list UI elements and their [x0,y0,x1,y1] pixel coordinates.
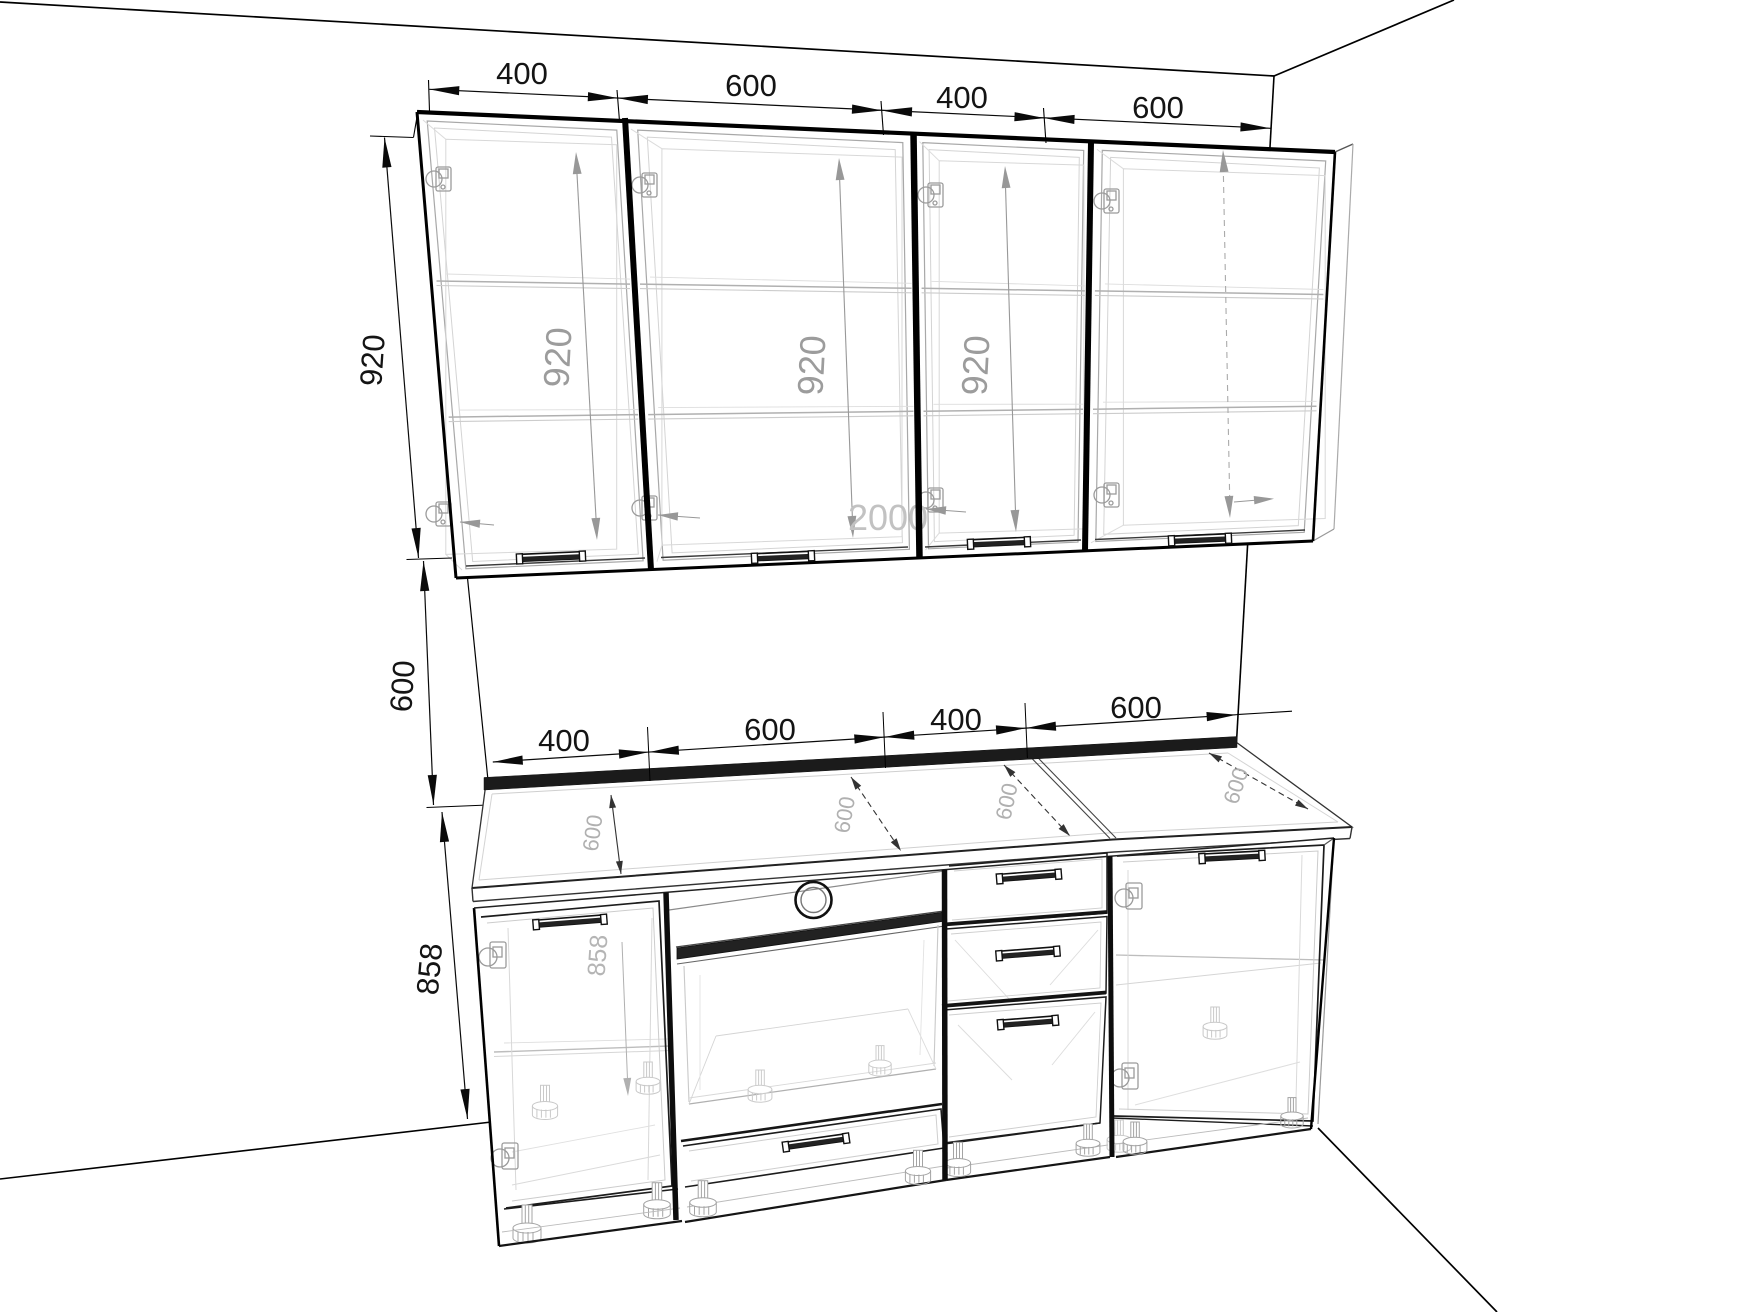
svg-text:600: 600 [383,659,422,713]
svg-text:600: 600 [725,68,777,103]
svg-text:400: 400 [538,723,590,758]
svg-text:920: 920 [353,333,392,387]
svg-text:400: 400 [496,56,548,91]
svg-text:920: 920 [789,334,833,396]
svg-text:600: 600 [744,712,796,747]
svg-text:920: 920 [953,334,997,396]
svg-text:400: 400 [930,702,982,737]
svg-text:858: 858 [583,934,614,978]
svg-text:400: 400 [936,80,988,115]
svg-text:920: 920 [535,326,579,388]
svg-text:858: 858 [410,942,449,997]
svg-text:600: 600 [578,813,608,853]
svg-text:600: 600 [1132,90,1184,125]
svg-text:600: 600 [1110,690,1162,725]
